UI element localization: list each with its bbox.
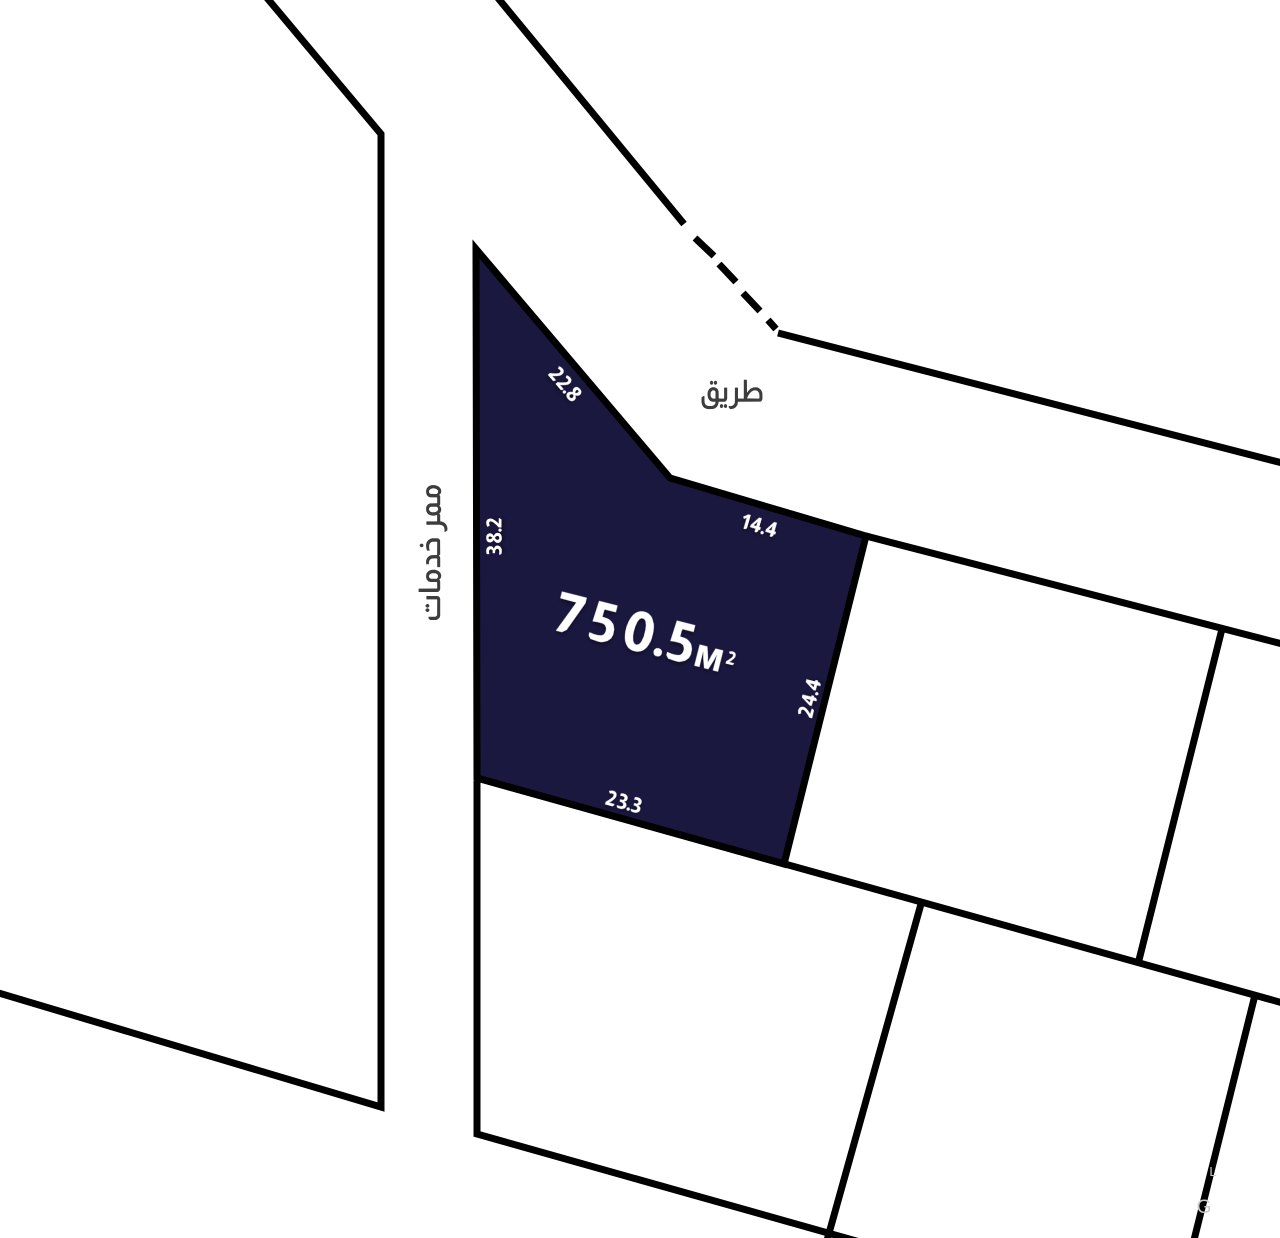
svg-text:G: G [1197, 1197, 1212, 1218]
svg-text:L: L [1209, 1164, 1216, 1179]
